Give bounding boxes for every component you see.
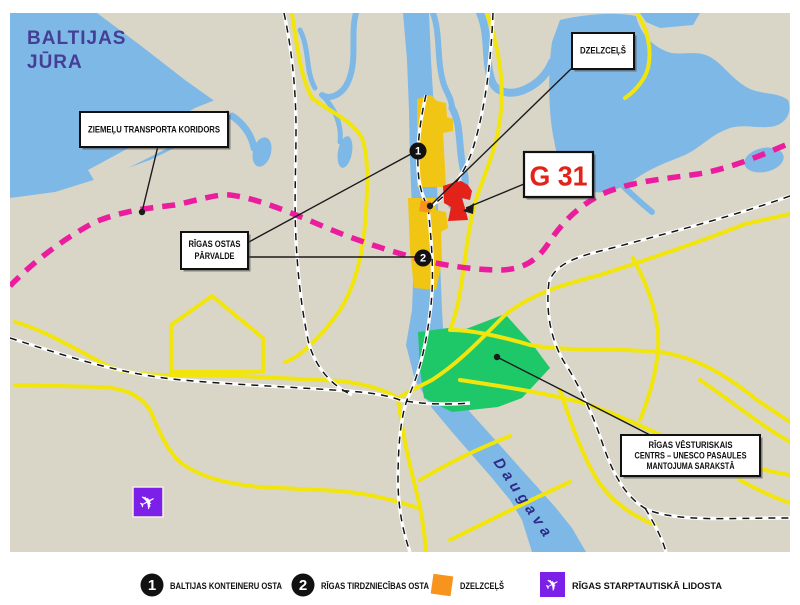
- callout-railway-text: DZELZCEĻŠ: [580, 45, 626, 57]
- legend-label-railway: DZELZCEĻŠ: [460, 580, 504, 592]
- legend-railway-icon: [431, 574, 454, 597]
- callout-unesco-box: RĪGAS VĒSTURISKAIS CENTRS – UNESCO PASAU…: [621, 435, 763, 479]
- map-marker-1-number: 1: [415, 146, 421, 158]
- riga-port-map: 1 2 ✈ BALTIJAS JŪRA Daugava ZIEMEĻU TRAN…: [0, 0, 800, 605]
- legend: 1 BALTIJAS KONTEINERU OSTA 2 RĪGAS TIRDZ…: [141, 572, 723, 597]
- airport-map-icon: ✈: [133, 487, 163, 517]
- legend-label-airport: RĪGAS STARPTAUTISKĀ LIDOSTA: [572, 581, 722, 592]
- legend-item-container-port: 1 BALTIJAS KONTEINERU OSTA: [141, 574, 283, 597]
- callout-unesco-line3: MANTOJUMA SARAKSTĀ: [647, 461, 735, 471]
- site-code-box: G 31: [524, 152, 596, 200]
- map-marker-1: 1: [410, 143, 427, 160]
- callout-corridor-box: ZIEMEĻU TRANSPORTA KORIDORS: [80, 112, 231, 150]
- sea-label-line2: JŪRA: [27, 52, 83, 73]
- map-marker-2-number: 2: [420, 253, 426, 265]
- callout-unesco-line2: CENTRS – UNESCO PASAULES: [635, 451, 747, 461]
- legend-item-trade-port: 2 RĪGAS TIRDZNIECĪBAS OSTA: [292, 574, 430, 597]
- callout-unesco-line1: RĪGAS VĒSTURISKAIS: [649, 440, 733, 450]
- callout-port-authority-line2: PĀRVALDE: [195, 251, 235, 262]
- callout-railway-box: DZELZCEĻŠ: [572, 33, 637, 72]
- map-marker-2: 2: [415, 250, 432, 267]
- callout-corridor-text: ZIEMEĻU TRANSPORTA KORIDORS: [88, 125, 220, 136]
- site-code-text: G 31: [530, 161, 588, 192]
- legend-item-railway: DZELZCEĻŠ: [431, 574, 504, 597]
- legend-marker-1-number: 1: [148, 577, 156, 594]
- legend-label-trade-port: RĪGAS TIRDZNIECĪBAS OSTA: [321, 581, 429, 592]
- map-screenshot: { "map": { "sea_label_line1": "BALTIJAS"…: [0, 0, 800, 605]
- legend-item-airport: ✈ RĪGAS STARPTAUTISKĀ LIDOSTA: [540, 572, 722, 597]
- callout-port-authority-box: RĪGAS OSTAS PĀRVALDE: [181, 232, 251, 272]
- callout-port-authority-line1: RĪGAS OSTAS: [189, 239, 241, 250]
- sea-label-line1: BALTIJAS: [27, 28, 126, 49]
- legend-marker-2-number: 2: [299, 577, 307, 594]
- legend-label-container-port: BALTIJAS KONTEINERU OSTA: [170, 581, 282, 592]
